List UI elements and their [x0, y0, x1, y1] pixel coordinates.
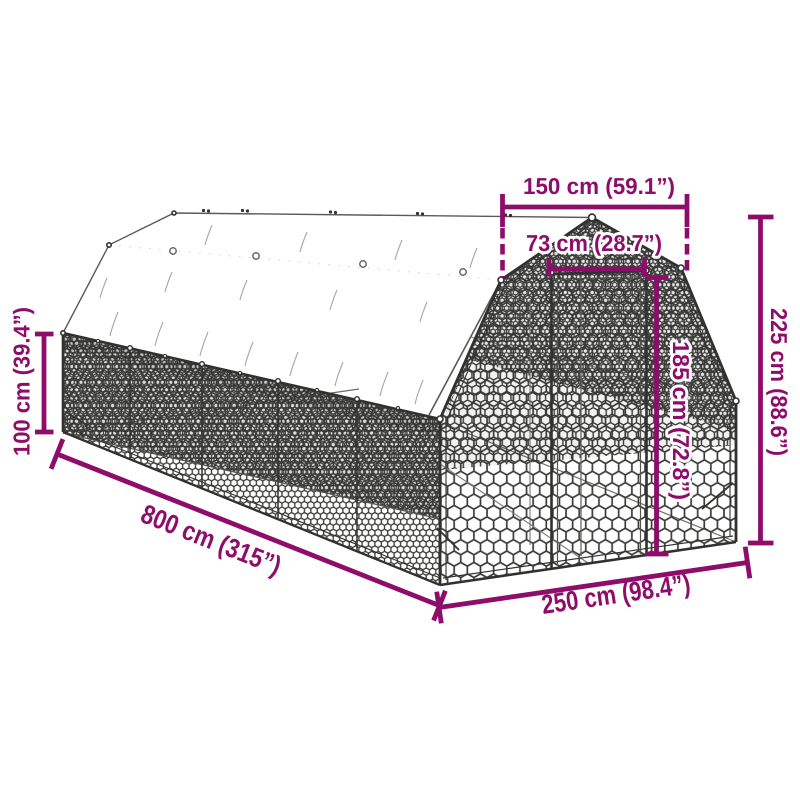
- svg-text:73 cm (28.7”): 73 cm (28.7”): [526, 230, 662, 256]
- svg-text:225 cm (88.6”): 225 cm (88.6”): [766, 308, 792, 456]
- svg-text:100 cm (39.4”): 100 cm (39.4”): [9, 307, 35, 456]
- svg-text:185 cm (72.8”): 185 cm (72.8”): [668, 341, 694, 500]
- svg-text:150 cm (59.1”): 150 cm (59.1”): [523, 173, 675, 199]
